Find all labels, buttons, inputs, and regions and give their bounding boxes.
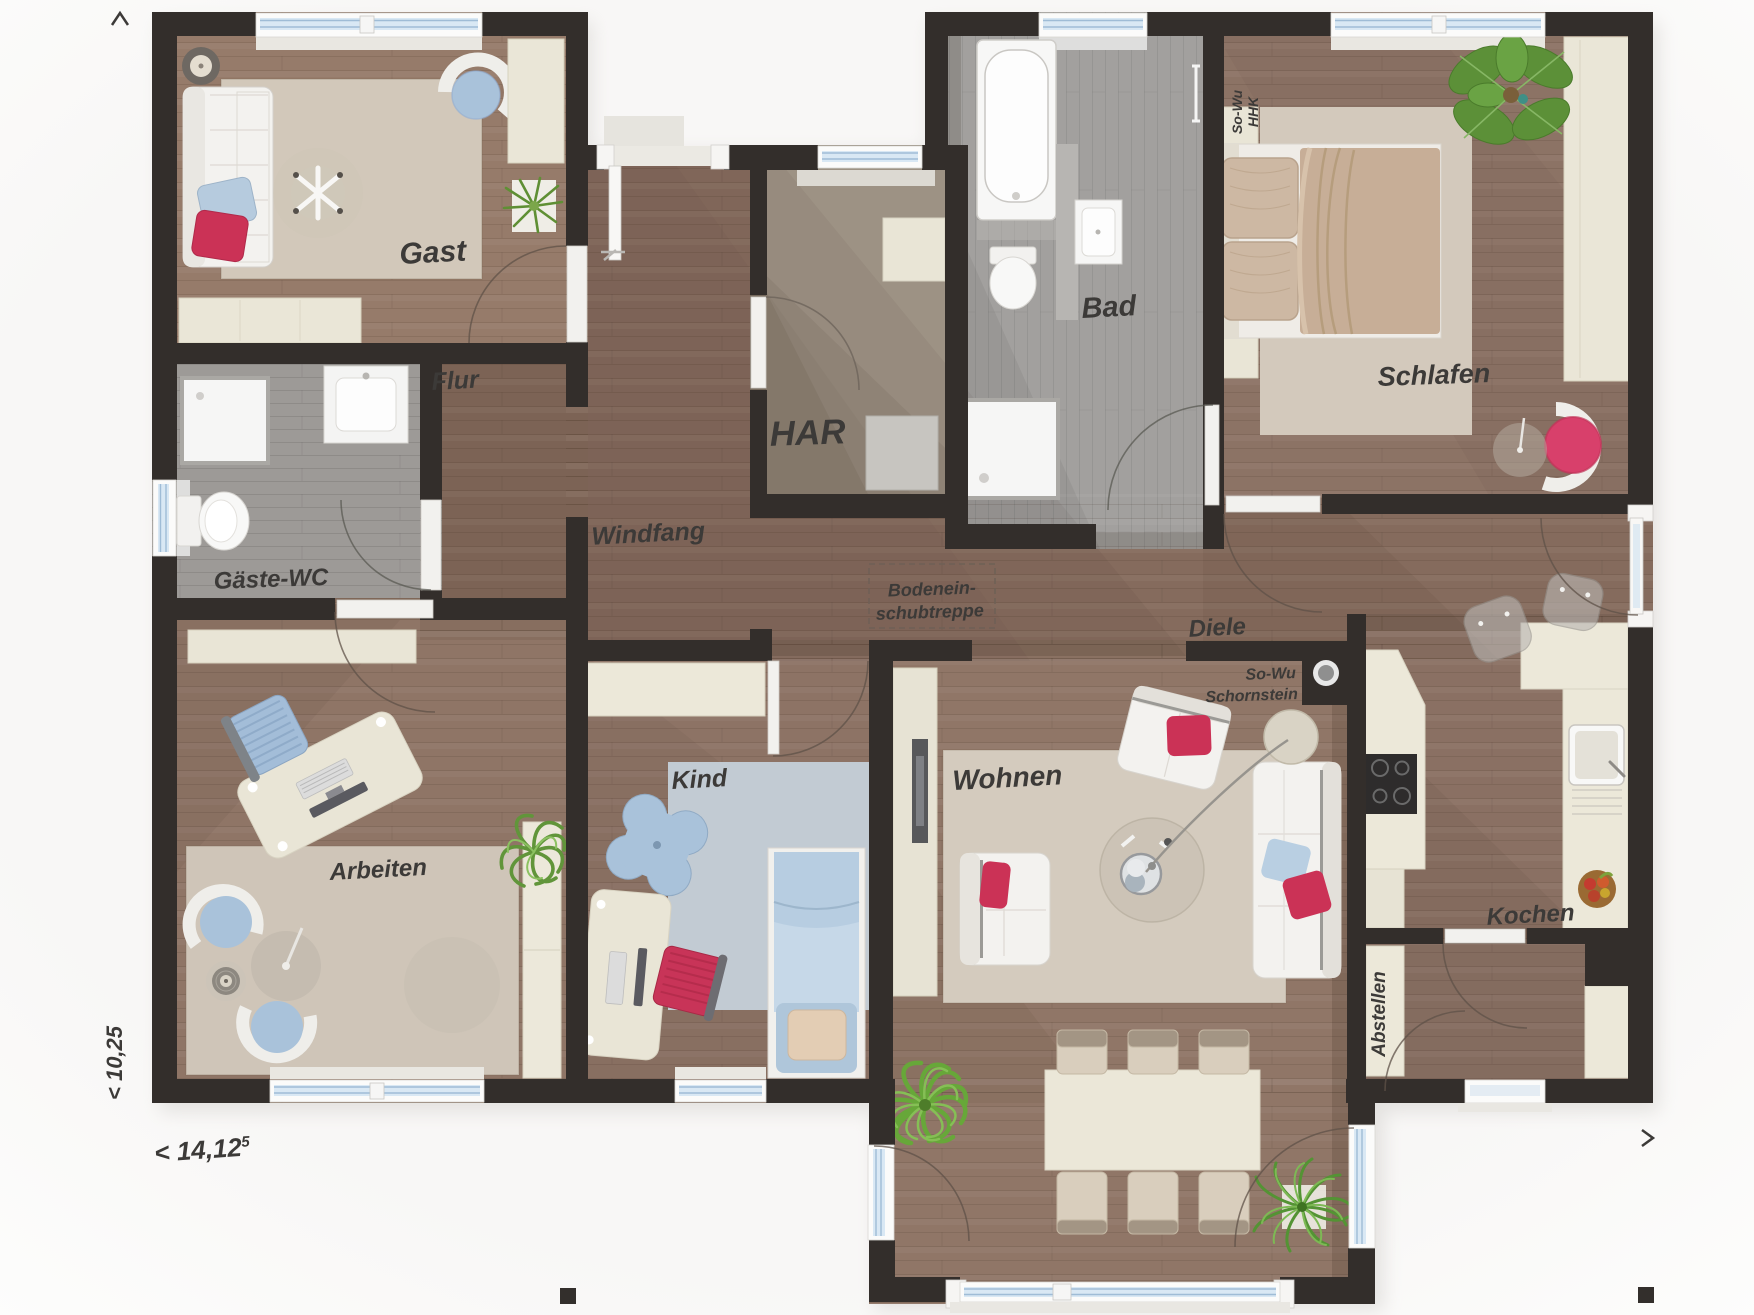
svg-text:Abstellen: Abstellen [1369, 971, 1390, 1058]
svg-text:So-Wu: So-Wu [1229, 90, 1245, 135]
svg-text:So-Wu: So-Wu [1245, 665, 1296, 684]
svg-text:Kind: Kind [671, 764, 729, 795]
svg-text:Wohnen: Wohnen [952, 759, 1063, 796]
svg-text:HAR: HAR [769, 412, 847, 454]
svg-text:Gast: Gast [399, 234, 469, 271]
svg-text:schubtreppe: schubtreppe [875, 600, 984, 624]
svg-text:Kochen: Kochen [1486, 899, 1575, 931]
svg-text:Bad: Bad [1081, 290, 1139, 325]
svg-text:Gäste-WC: Gäste-WC [213, 564, 329, 595]
svg-text:HHK: HHK [1245, 96, 1261, 127]
svg-text:< 10,25: < 10,25 [102, 1025, 127, 1100]
svg-text:Diele: Diele [1188, 613, 1247, 643]
svg-text:Flur: Flur [431, 365, 481, 395]
svg-text:Bodenein-: Bodenein- [887, 577, 976, 600]
svg-text:Schlafen: Schlafen [1377, 358, 1491, 392]
svg-text:Windfang: Windfang [591, 517, 706, 551]
svg-text:Schornstein: Schornstein [1205, 686, 1298, 706]
svg-text:Arbeiten: Arbeiten [328, 854, 428, 886]
